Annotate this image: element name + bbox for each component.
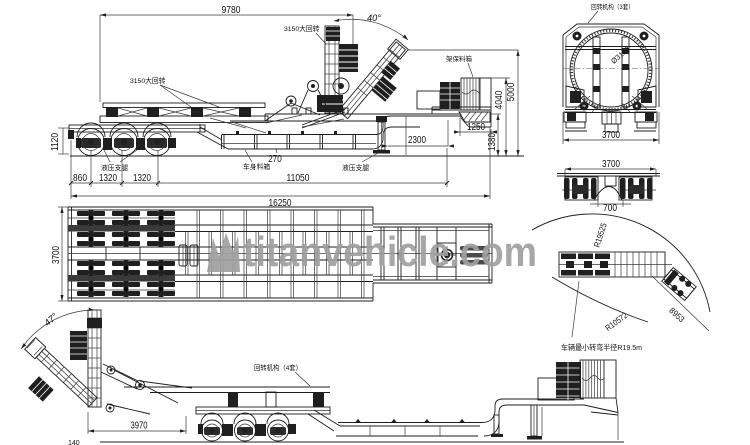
svg-text:3150大回转: 3150大回转	[130, 76, 166, 85]
svg-text:3150大回转: 3150大回转	[284, 24, 320, 33]
svg-text:titanvehicle.com: titanvehicle.com	[243, 228, 537, 275]
svg-text:1380: 1380	[487, 133, 498, 151]
svg-text:140: 140	[68, 440, 80, 445]
svg-text:270: 270	[268, 154, 282, 165]
svg-text:架保料箱: 架保料箱	[446, 54, 473, 63]
svg-text:车身料箱: 车身料箱	[243, 162, 270, 171]
svg-text:1120: 1120	[50, 133, 61, 151]
svg-text:2300: 2300	[408, 135, 426, 146]
svg-text:4040: 4040	[494, 90, 505, 109]
svg-text:液压支腿: 液压支腿	[101, 163, 128, 172]
svg-text:回转机构（3套）: 回转机构（3套）	[591, 2, 634, 11]
svg-text:车辆最小转弯半径R19.5m: 车辆最小转弯半径R19.5m	[561, 343, 642, 352]
svg-text:3700: 3700	[51, 246, 62, 264]
svg-text:液压支腿: 液压支腿	[342, 163, 369, 172]
svg-text:1320: 1320	[133, 173, 151, 184]
svg-text:9780: 9780	[222, 5, 241, 16]
svg-text:3700: 3700	[602, 130, 620, 141]
svg-text:1250: 1250	[467, 122, 485, 133]
svg-text:1320: 1320	[99, 173, 117, 184]
svg-text:40°: 40°	[367, 13, 381, 24]
svg-text:3700: 3700	[602, 159, 620, 170]
svg-text:11050: 11050	[287, 173, 310, 184]
svg-text:回转机构（4套）: 回转机构（4套）	[254, 363, 302, 372]
svg-text:5000: 5000	[506, 82, 517, 101]
svg-text:860: 860	[73, 173, 87, 184]
svg-text:3970: 3970	[131, 421, 148, 432]
svg-text:700: 700	[603, 203, 617, 214]
